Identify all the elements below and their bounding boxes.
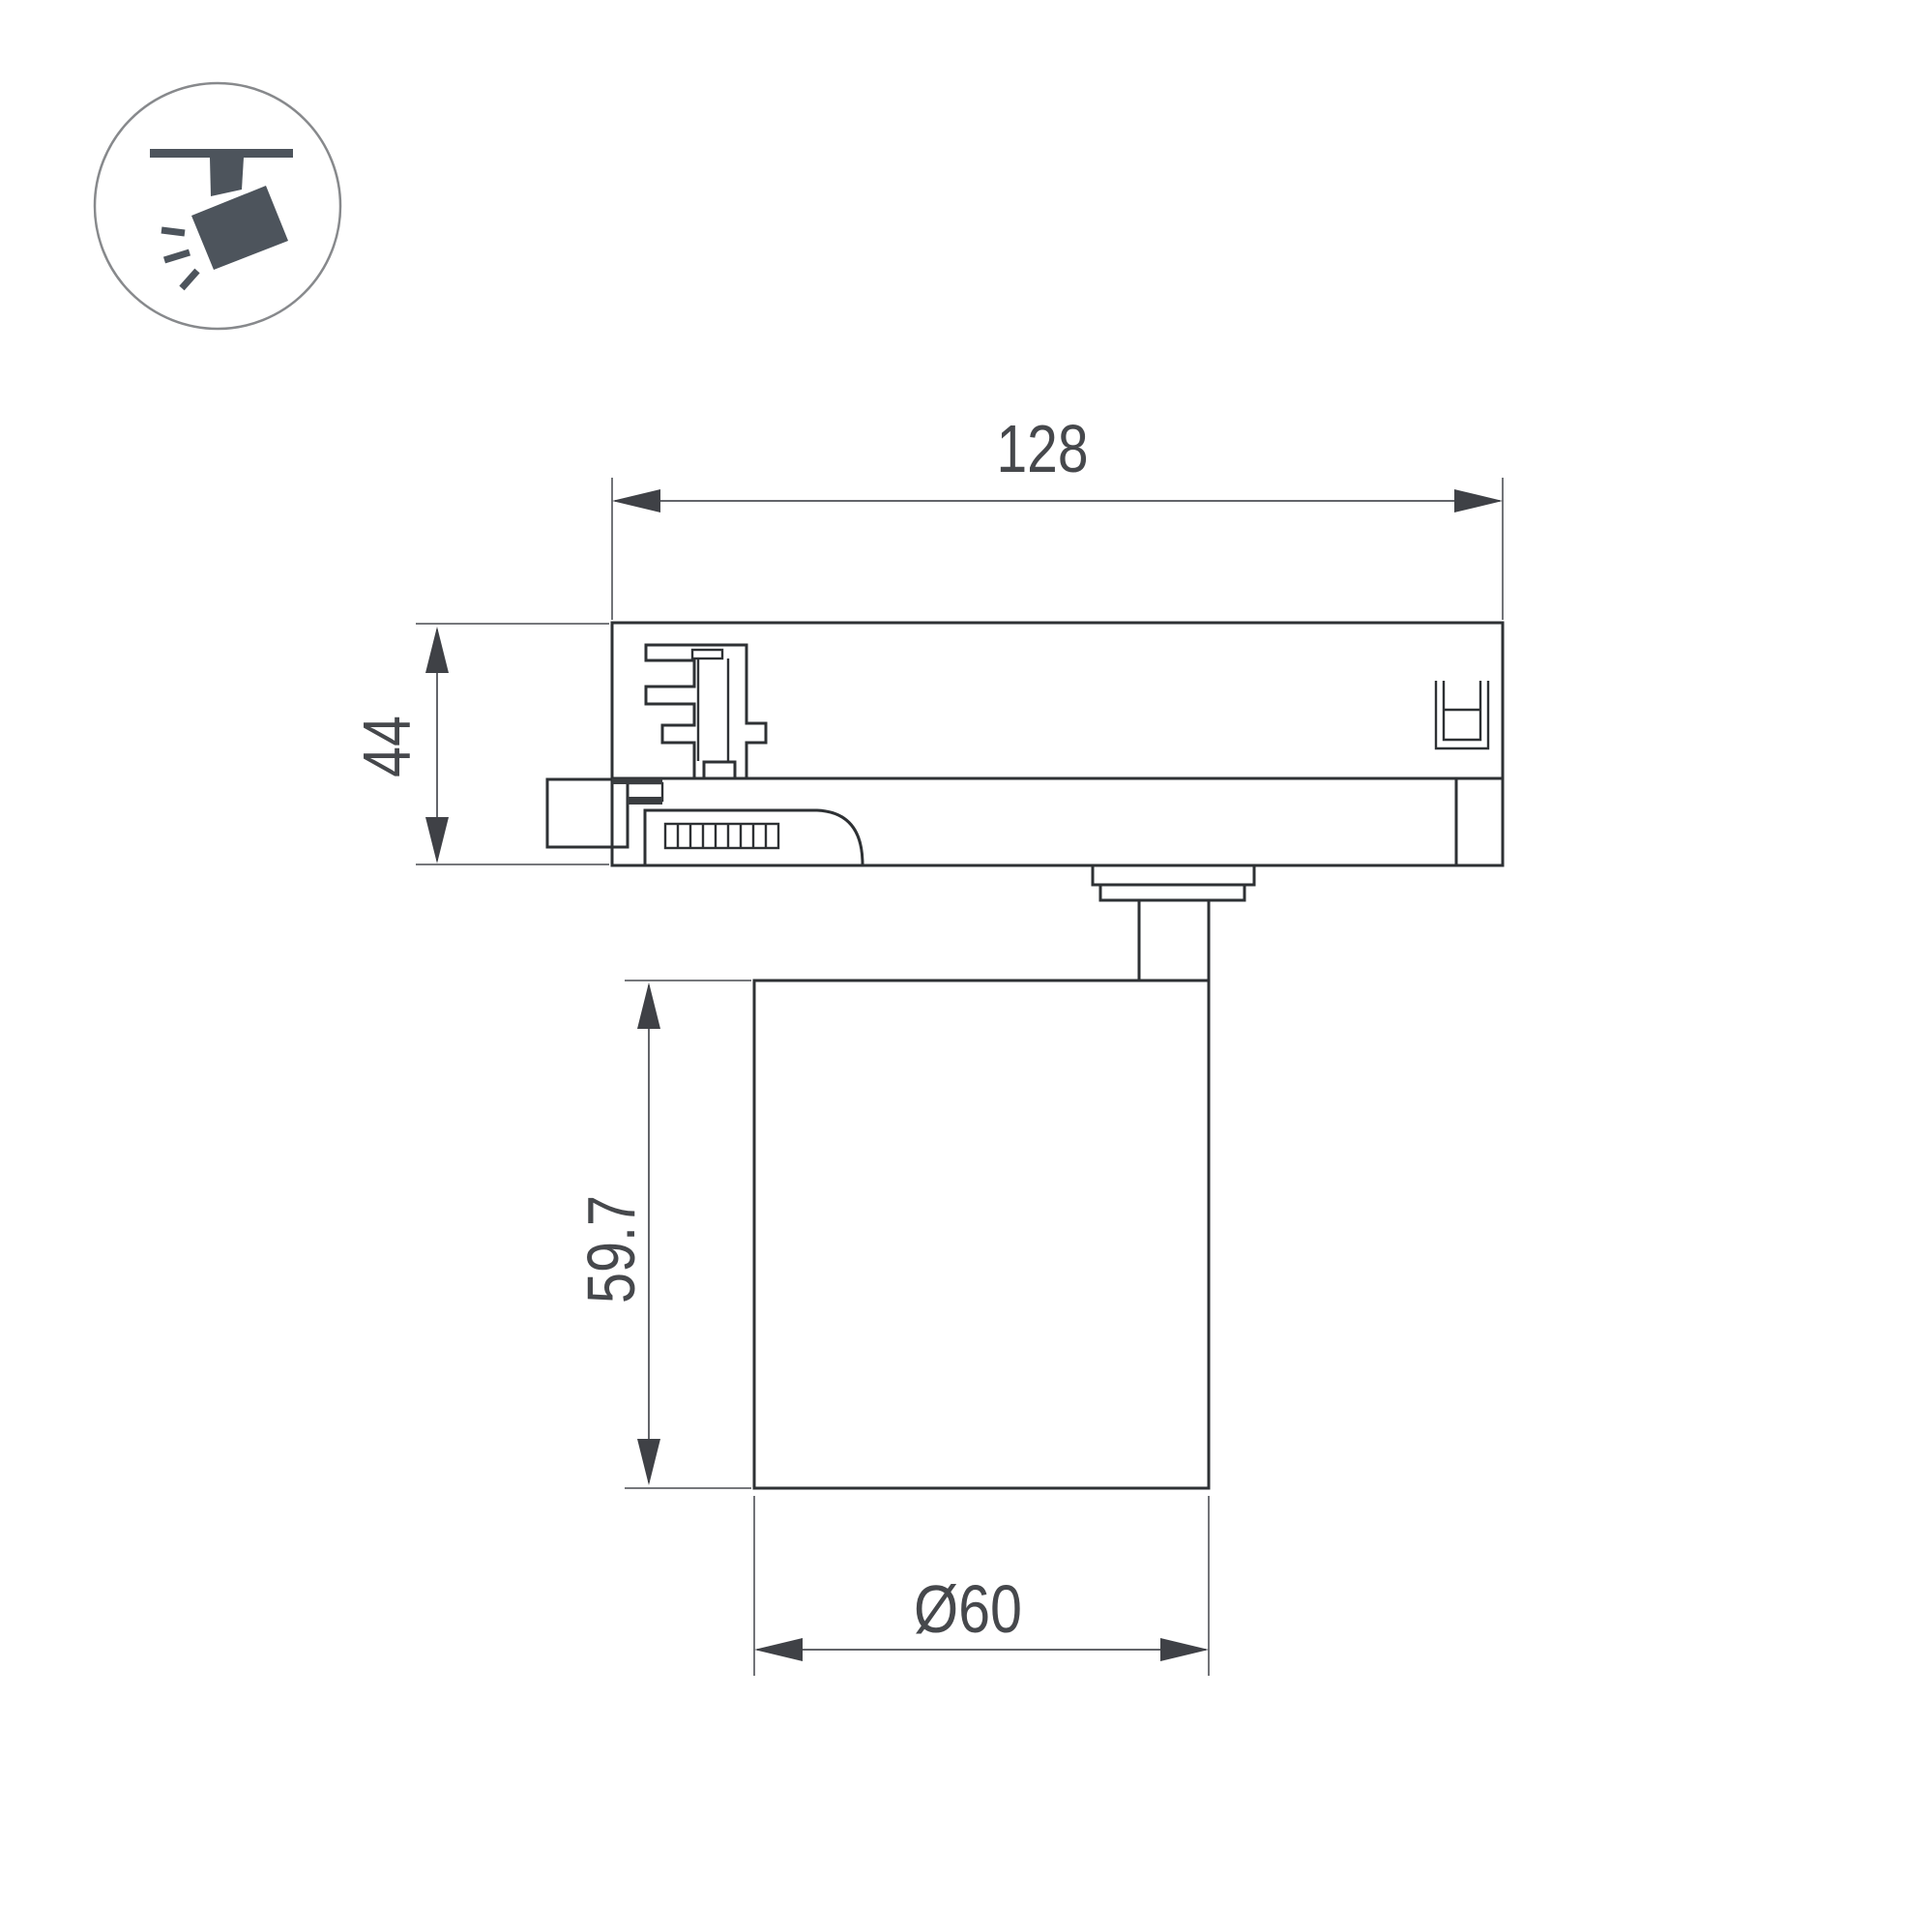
product-type-icon bbox=[95, 83, 340, 329]
dimension-label-59.7: 59.7 bbox=[573, 1195, 649, 1303]
dimension-label-d60: Ø60 bbox=[914, 1571, 1022, 1647]
dimension-label-128: 128 bbox=[997, 411, 1089, 486]
dimension-label-44: 44 bbox=[349, 716, 424, 777]
track-bar bbox=[150, 149, 293, 158]
technical-drawing: 128 44 bbox=[0, 0, 1932, 1932]
light-ray bbox=[161, 230, 185, 233]
slab-top-bar bbox=[612, 778, 662, 784]
latch-bar bbox=[628, 797, 662, 805]
